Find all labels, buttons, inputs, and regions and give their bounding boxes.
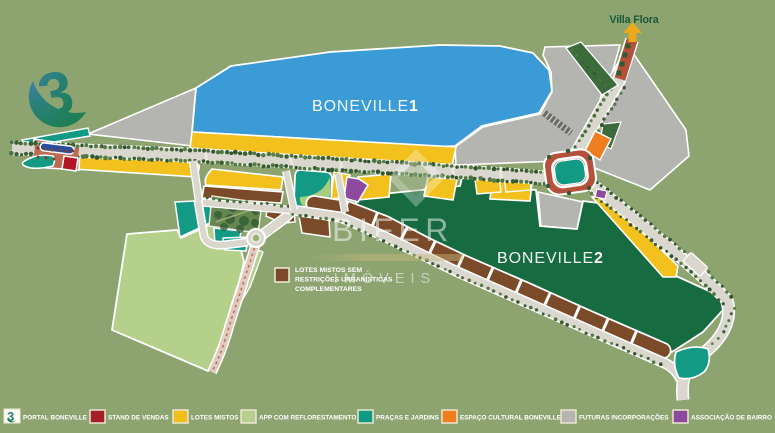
svg-text:LOTES MISTOS SEM: LOTES MISTOS SEM bbox=[295, 267, 362, 274]
svg-text:BONEVILLE1: BONEVILLE1 bbox=[312, 98, 419, 115]
svg-text:PRAÇAS E JARDINS: PRAÇAS E JARDINS bbox=[376, 415, 440, 422]
svg-text:ESPAÇO CULTURAL BONEVILLE: ESPAÇO CULTURAL BONEVILLE bbox=[460, 415, 562, 422]
svg-text:BIFER: BIFER bbox=[332, 212, 454, 248]
svg-text:PORTAL BONEVILLE: PORTAL BONEVILLE bbox=[23, 415, 88, 422]
svg-text:ASSOCIAÇÃO DE BAIRRO: ASSOCIAÇÃO DE BAIRRO bbox=[691, 413, 772, 422]
svg-text:FUTURAS INCORPORAÇÕES: FUTURAS INCORPORAÇÕES bbox=[579, 413, 669, 422]
svg-text:STAND DE VENDAS: STAND DE VENDAS bbox=[108, 415, 169, 422]
svg-text:3: 3 bbox=[7, 409, 14, 424]
svg-text:BONEVILLE2: BONEVILLE2 bbox=[497, 250, 604, 267]
svg-text:Villa Flora: Villa Flora bbox=[609, 14, 659, 26]
svg-text:COMPLEMENTARES: COMPLEMENTARES bbox=[295, 286, 362, 293]
svg-text:LOTES MISTOS: LOTES MISTOS bbox=[191, 415, 239, 422]
svg-text:RESTRIÇÕES URBANÍSTICAS: RESTRIÇÕES URBANÍSTICAS bbox=[295, 275, 393, 284]
svg-text:APP COM REFLORESTAMENTO: APP COM REFLORESTAMENTO bbox=[259, 415, 356, 422]
